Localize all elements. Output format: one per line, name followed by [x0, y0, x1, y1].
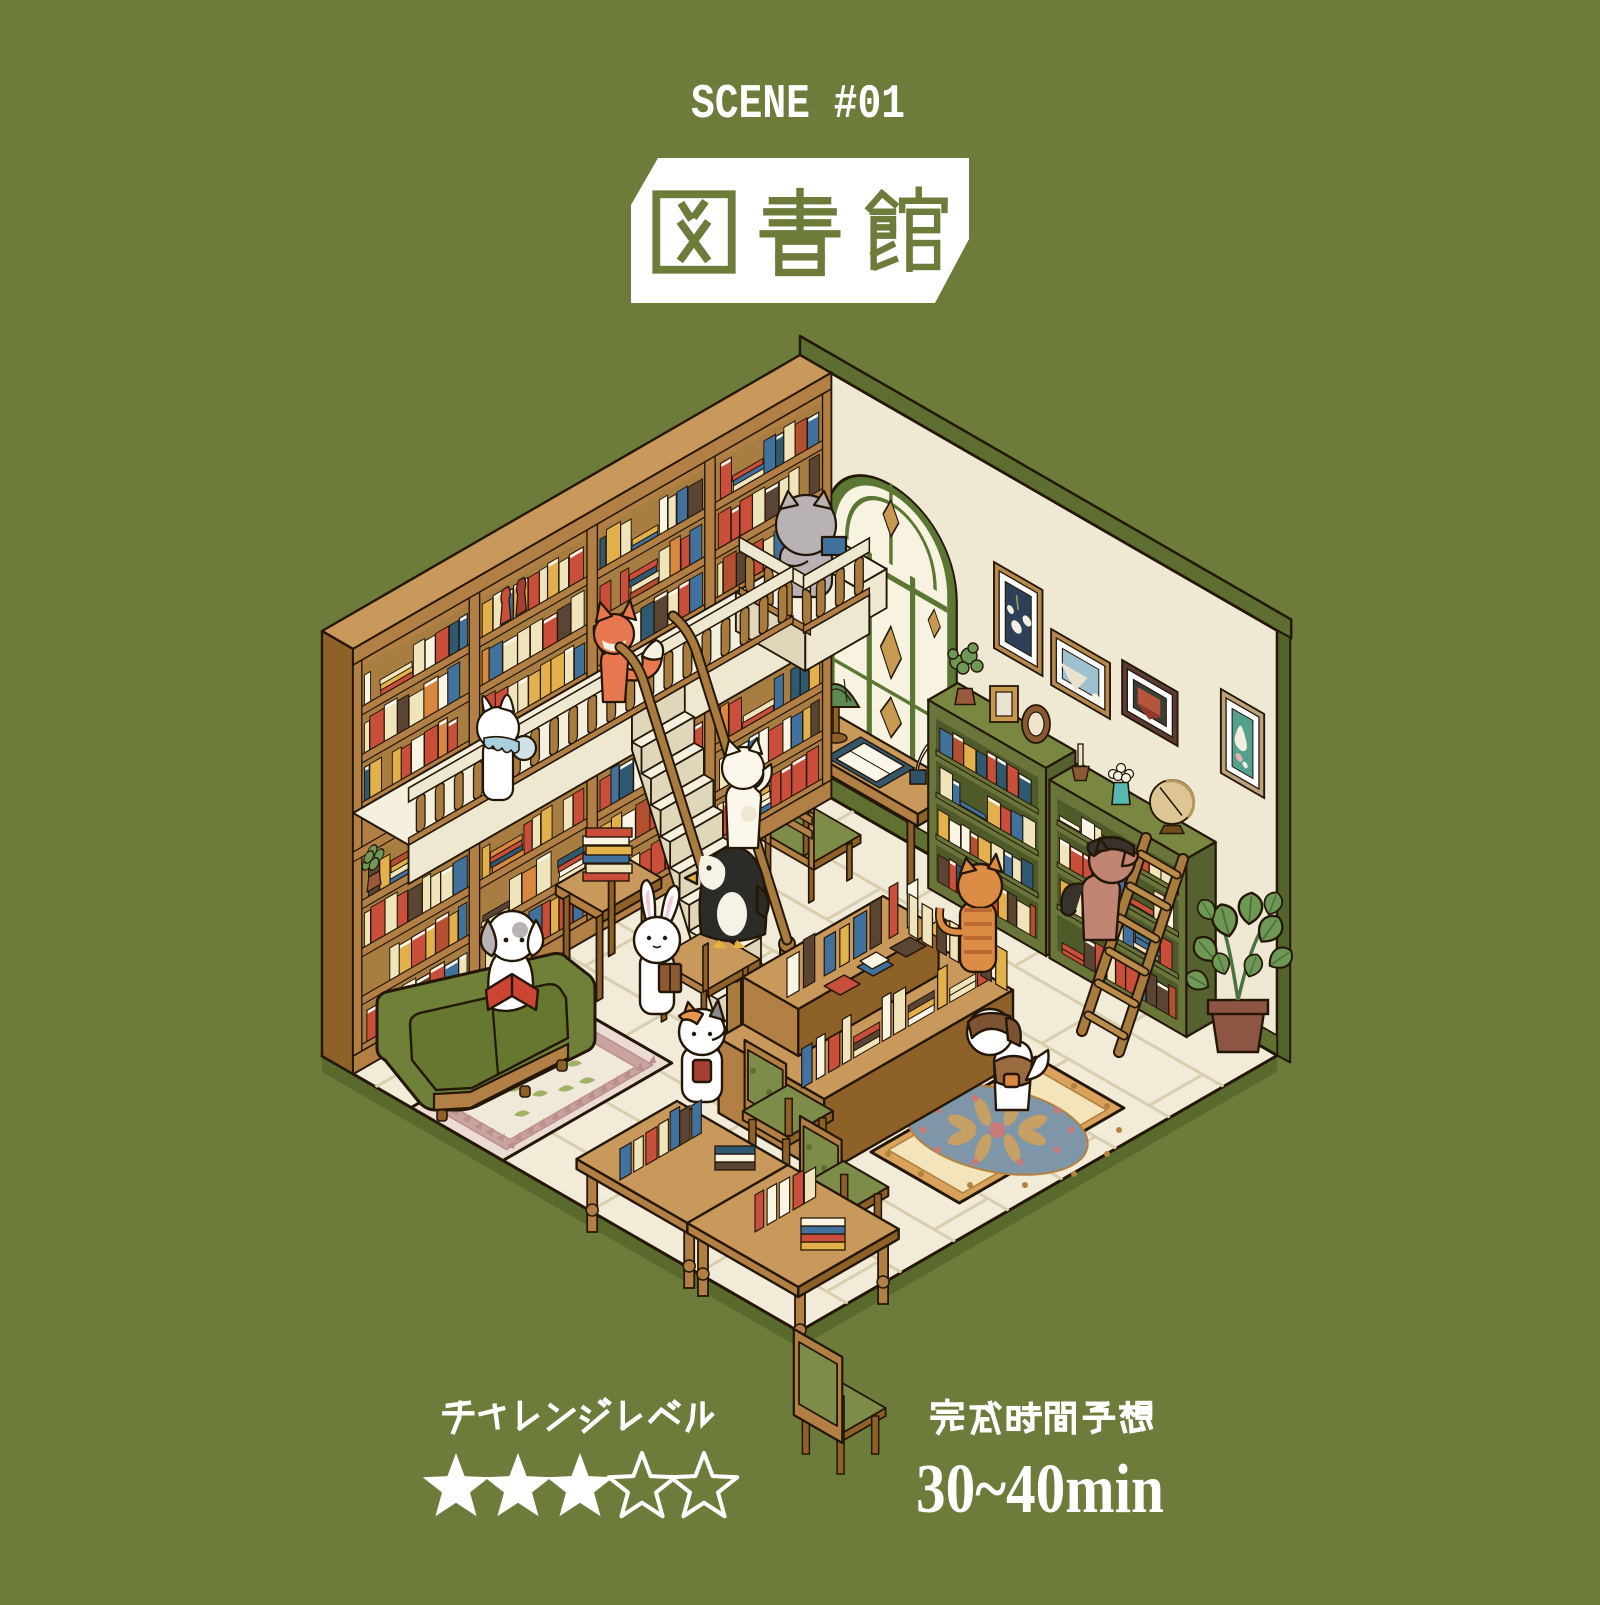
svg-text:30~40min: 30~40min [916, 1451, 1164, 1528]
svg-text:SCENE #01: SCENE #01 [691, 78, 905, 132]
